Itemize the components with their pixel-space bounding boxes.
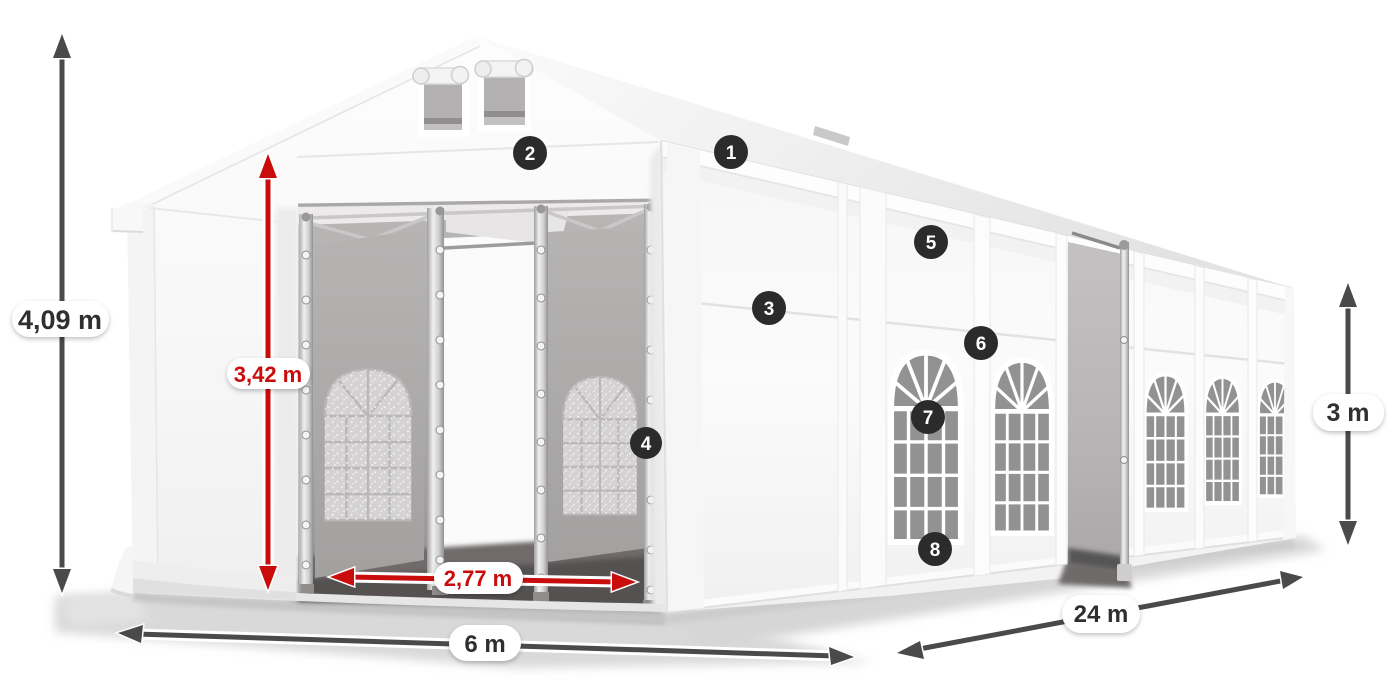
svg-text:1: 1	[726, 143, 737, 164]
svg-text:3: 3	[764, 299, 775, 320]
svg-text:24 m: 24 m	[1074, 601, 1129, 628]
svg-text:3 m: 3 m	[1326, 399, 1369, 427]
svg-text:7: 7	[923, 408, 934, 429]
svg-text:4,09 m: 4,09 m	[18, 305, 102, 335]
svg-text:6: 6	[976, 334, 987, 355]
svg-text:6 m: 6 m	[464, 631, 505, 658]
svg-text:2: 2	[525, 144, 536, 165]
svg-text:4: 4	[641, 434, 652, 455]
svg-text:5: 5	[926, 233, 937, 254]
svg-text:8: 8	[930, 540, 941, 561]
svg-text:3,42 m: 3,42 m	[234, 362, 303, 387]
svg-text:2,77 m: 2,77 m	[444, 566, 513, 591]
